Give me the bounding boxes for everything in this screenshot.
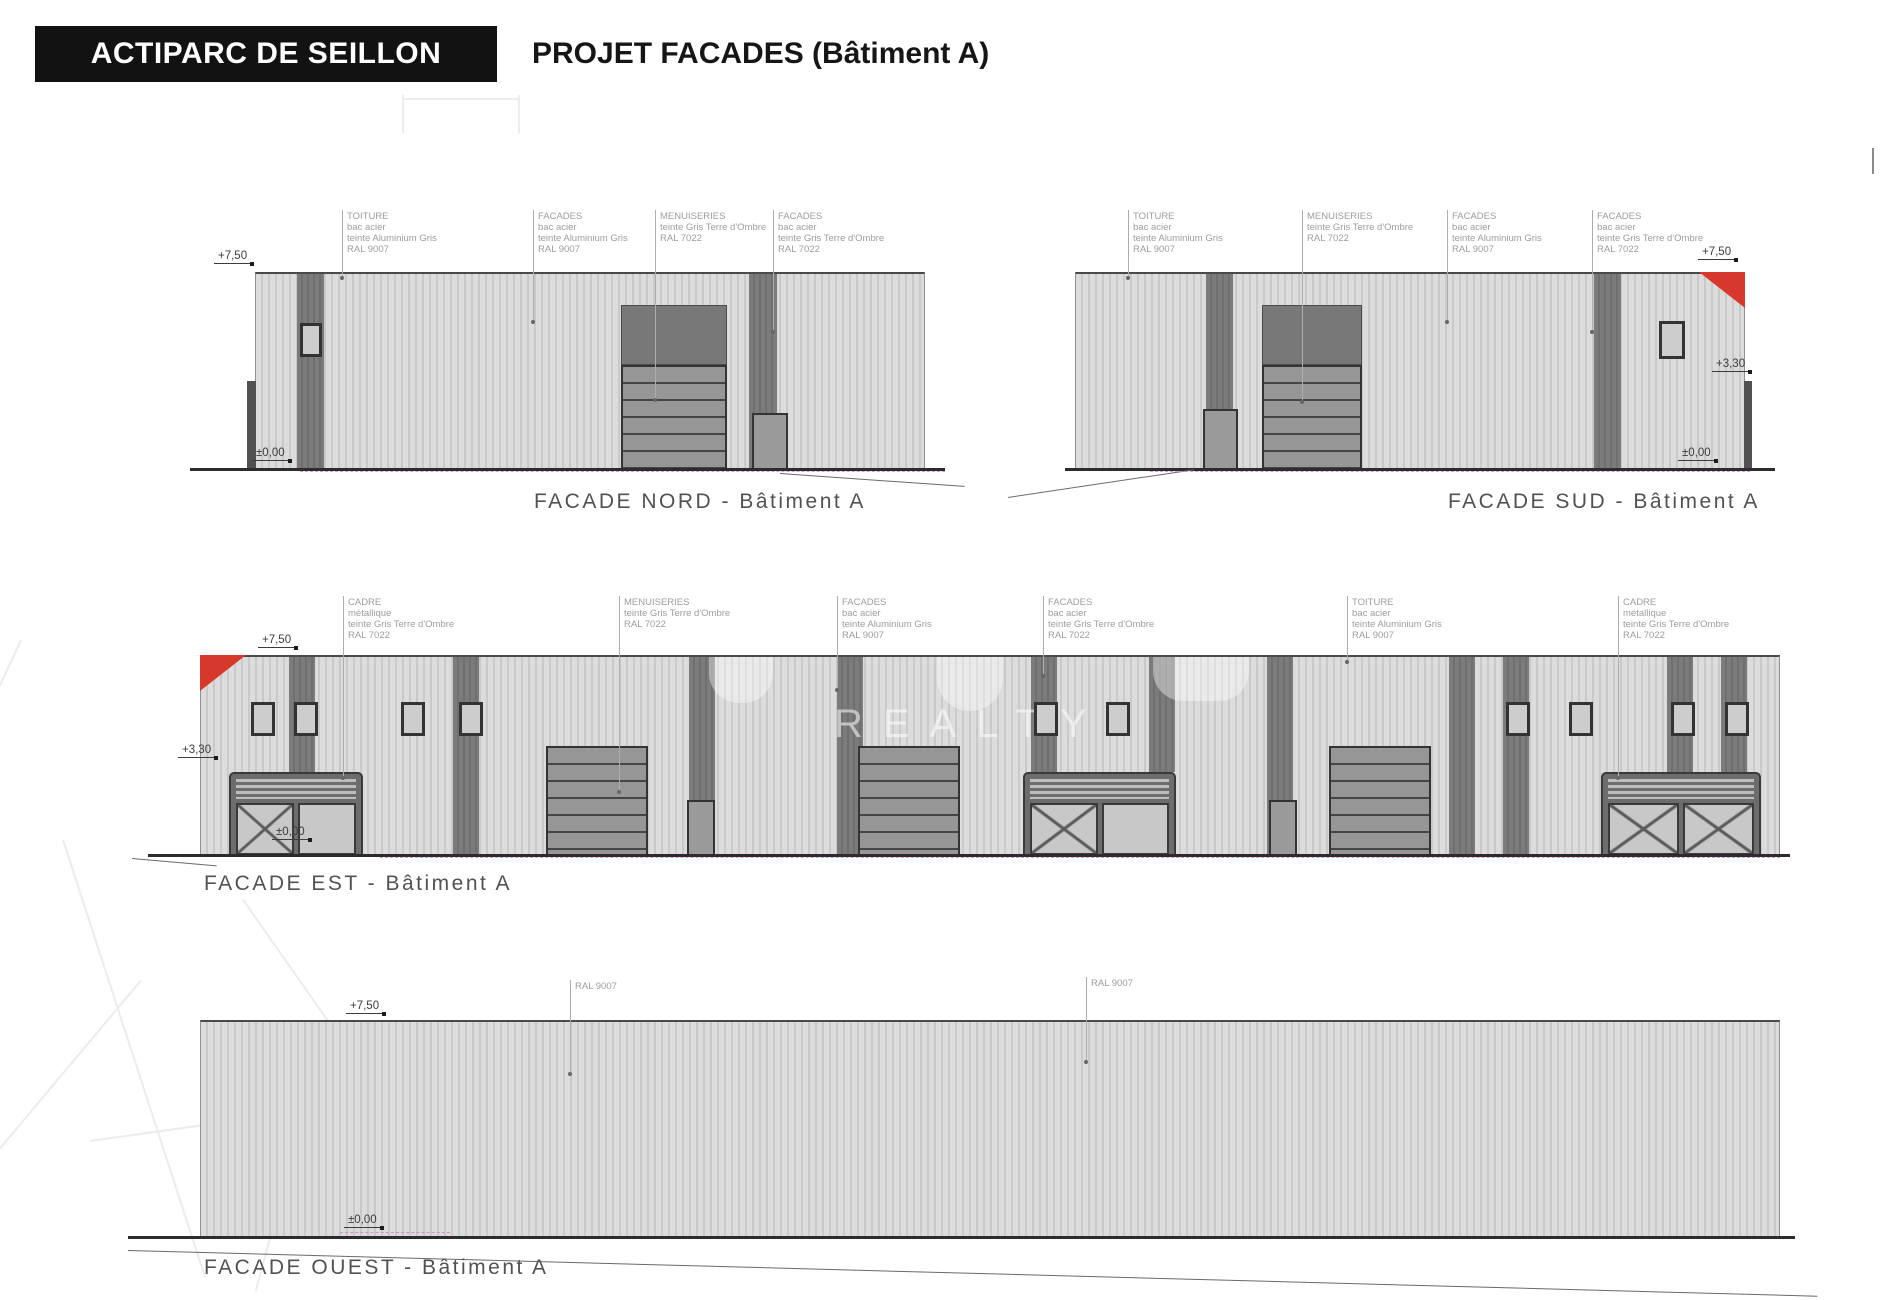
- annotation-ral-right: RAL 9007: [1086, 977, 1087, 1062]
- terrain-line-magenta: [340, 1232, 450, 1233]
- drawing-title-ouest: FACADE OUEST - Bâtiment A: [204, 1256, 549, 1280]
- facades-drawing-sheet: ACTIPARC DE SEILLON PROJET FACADES (Bâti…: [0, 0, 1880, 1300]
- level-marker-top: +7,50: [346, 1000, 383, 1014]
- facade-ouest-group: RAL 9007 RAL 9007 +7,50 ±0,00 FACADE OUE…: [0, 0, 1880, 1300]
- facade-ouest-elevation: [200, 1020, 1780, 1237]
- level-marker-ground: ±0,00: [344, 1214, 381, 1228]
- ground-line: [128, 1236, 1795, 1239]
- annotation-ral-left: RAL 9007: [570, 980, 571, 1074]
- annotation-text: RAL 9007: [575, 981, 695, 992]
- annotation-text: RAL 9007: [1091, 978, 1211, 989]
